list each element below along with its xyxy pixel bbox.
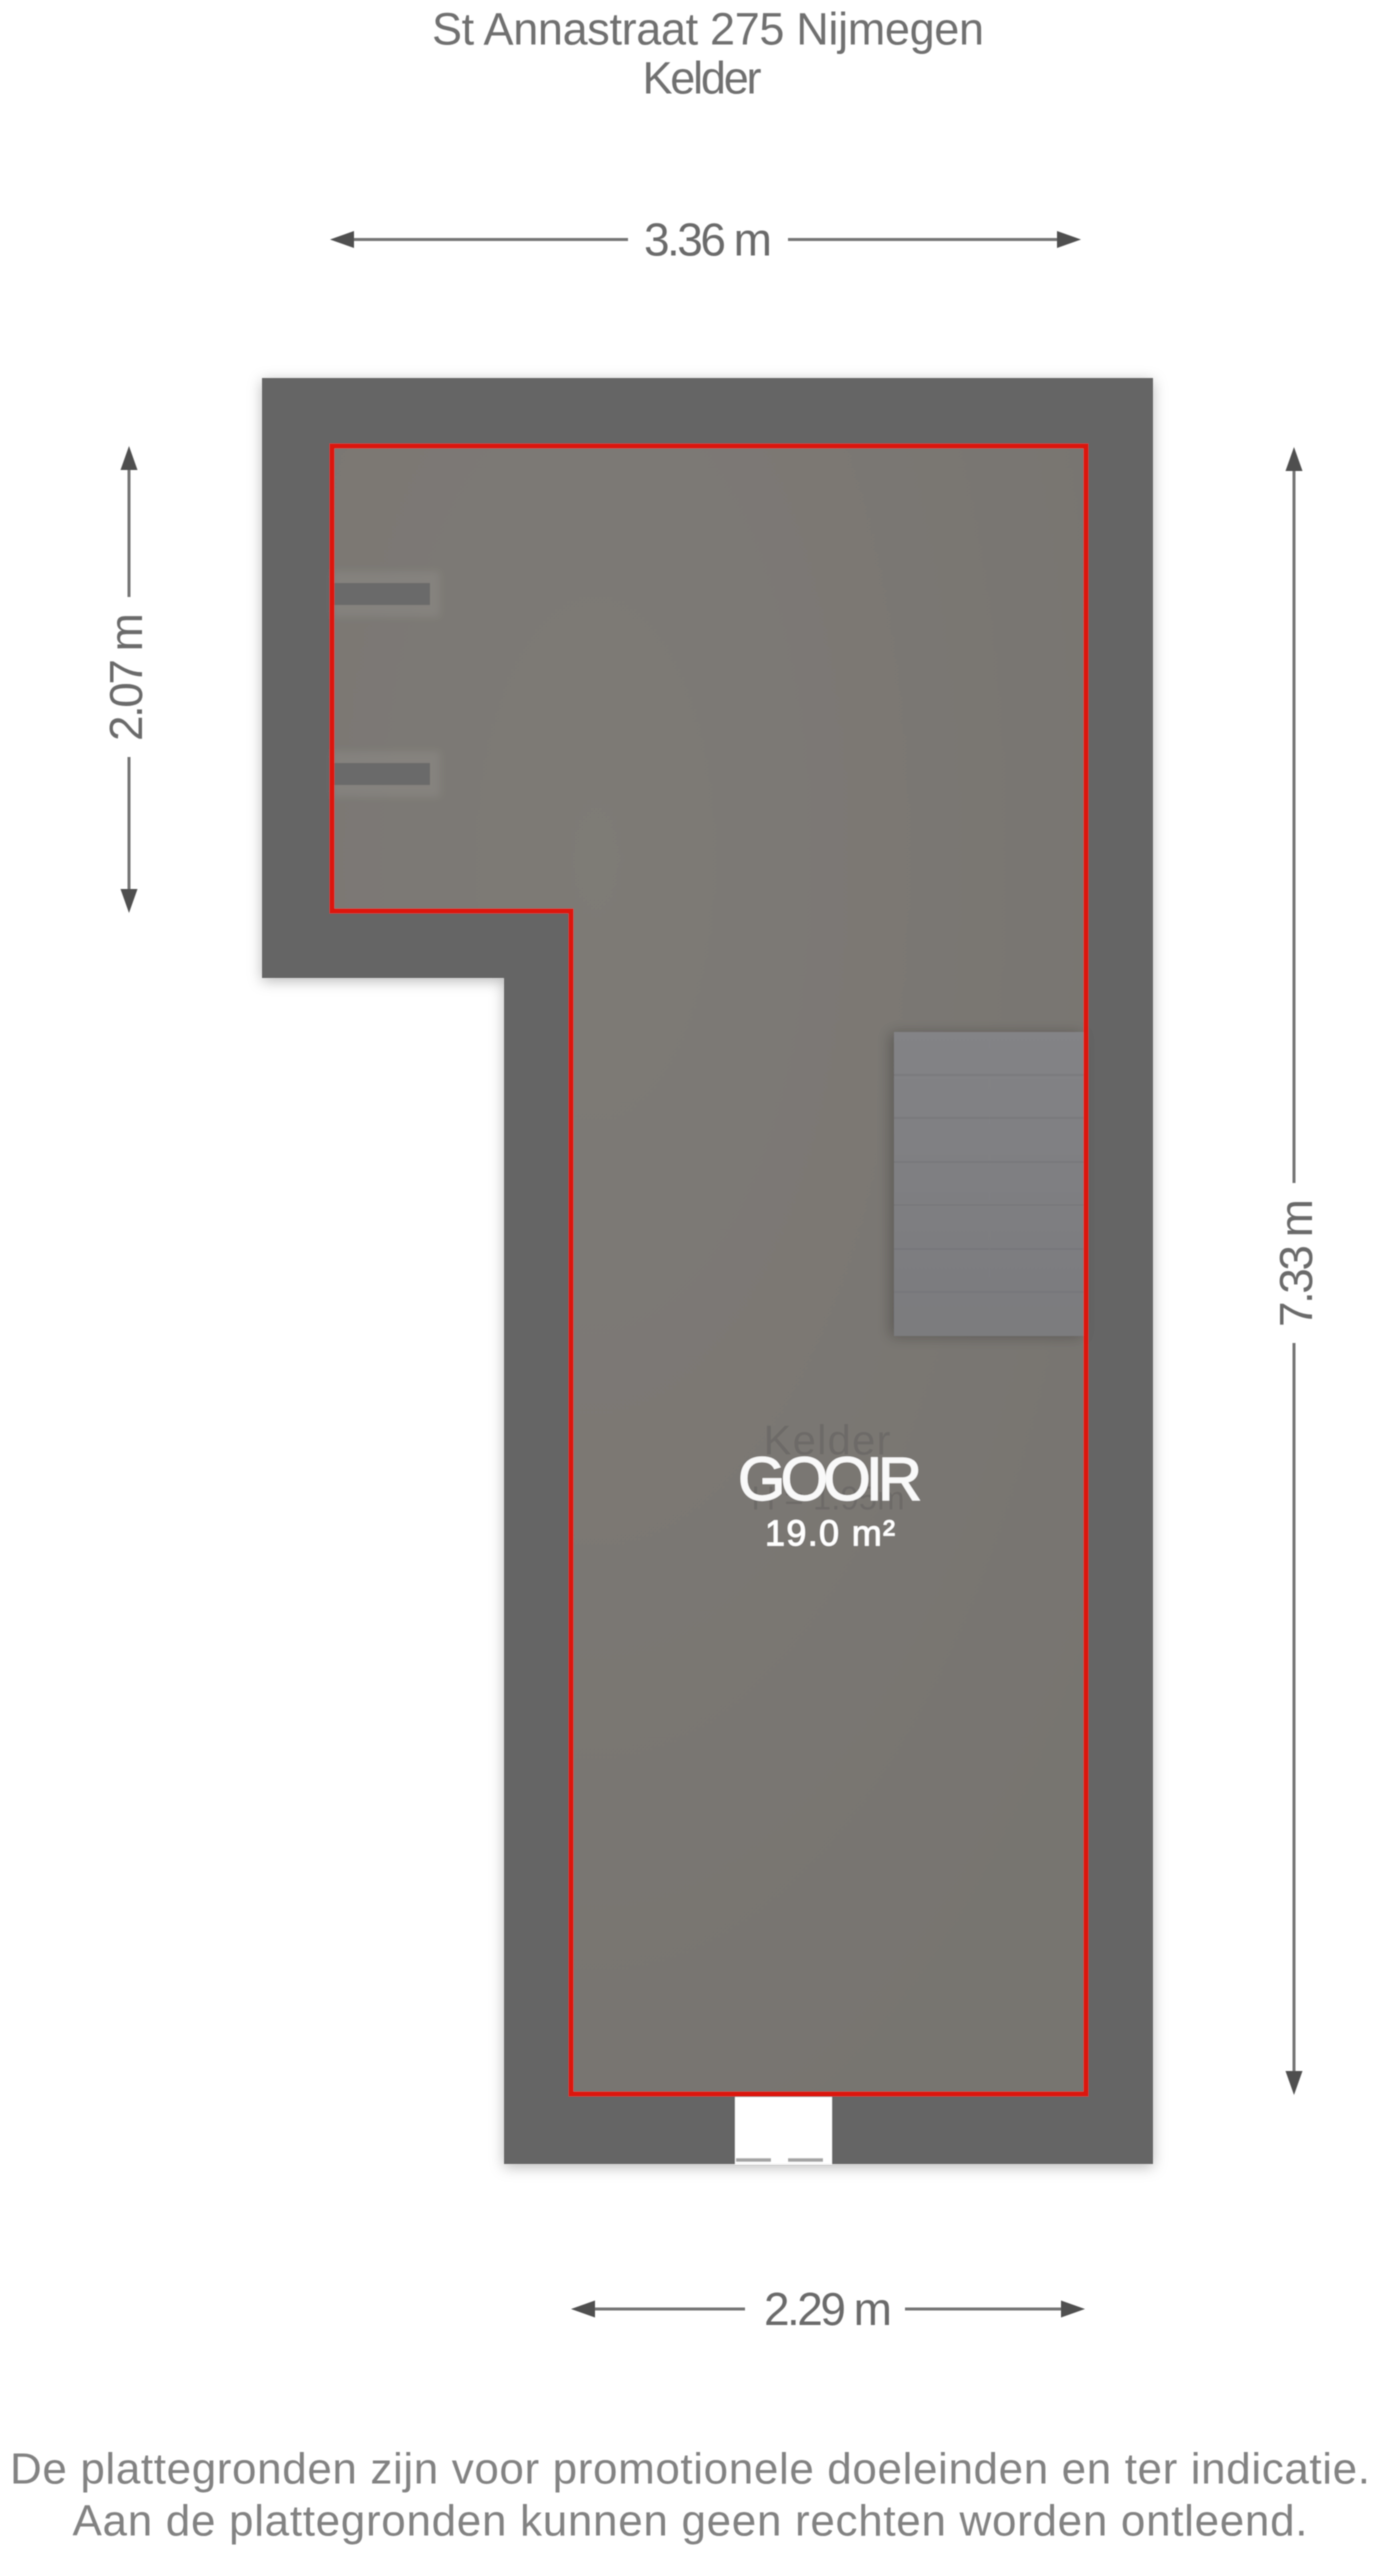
svg-text:19.0 m²: 19.0 m² (765, 1513, 895, 1554)
svg-text:3.36 m: 3.36 m (644, 214, 772, 266)
svg-text:De plattegronden zijn voor pro: De plattegronden zijn voor promotionele … (10, 2445, 1370, 2494)
svg-text:2.29 m: 2.29 m (764, 2283, 892, 2335)
svg-text:Aan de plattegronden kunnen ge: Aan de plattegronden kunnen geen rechten… (73, 2497, 1308, 2546)
svg-text:7.33 m: 7.33 m (1270, 1199, 1322, 1327)
svg-text:St Annastraat 275 Nijmegen: St Annastraat 275 Nijmegen (432, 4, 984, 55)
svg-text:2.07 m: 2.07 m (100, 613, 152, 741)
svg-text:GOOIR: GOOIR (738, 1445, 922, 1513)
svg-text:Kelder: Kelder (643, 53, 762, 104)
